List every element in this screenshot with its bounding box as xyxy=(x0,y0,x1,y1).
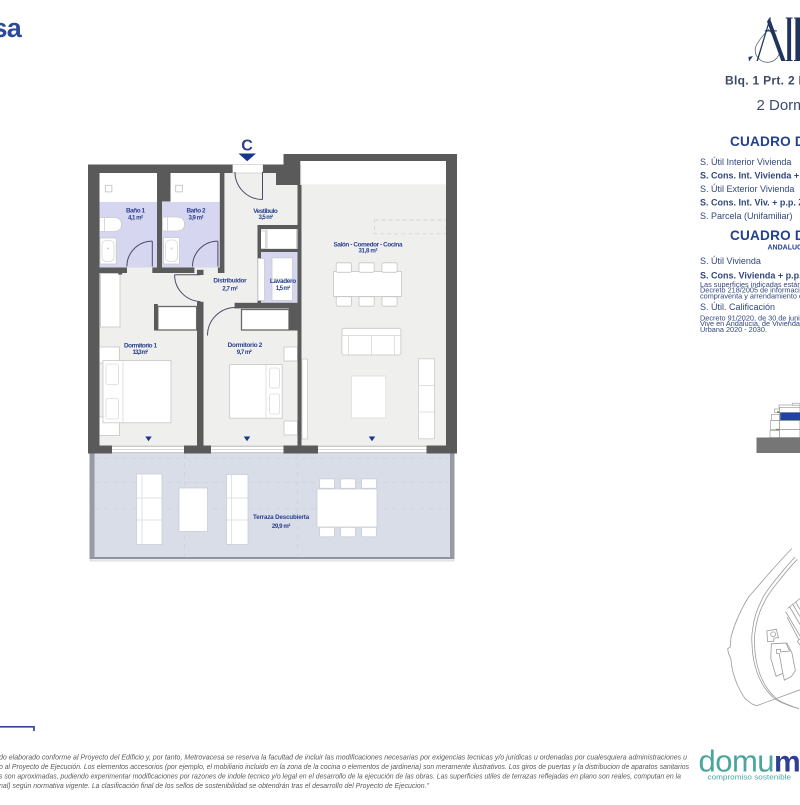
svg-text:Blq. 1 Prt. 2 Planta 1: Blq. 1 Prt. 2 Planta 1 xyxy=(725,74,800,88)
svg-text:Urbana 2020 - 2030.: Urbana 2020 - 2030. xyxy=(700,325,767,334)
svg-text:3,9 m²: 3,9 m² xyxy=(189,215,204,222)
svg-text:9,7 m²: 9,7 m² xyxy=(237,349,252,356)
svg-text:S. Útil Vivienda: S. Útil Vivienda xyxy=(700,256,761,266)
svg-text:S. Útil Interior Vivienda: S. Útil Interior Vivienda xyxy=(700,157,791,167)
svg-text:2 Dormitorios: 2 Dormitorios xyxy=(757,97,800,114)
svg-text:compraventa y arrendamiento de: compraventa y arrendamiento de xyxy=(700,291,800,300)
svg-text:S. Útil Exterior Vivienda: S. Útil Exterior Vivienda xyxy=(700,184,794,194)
svg-text:CUADRO DE: CUADRO DE xyxy=(730,134,800,149)
svg-text:4,1 m²: 4,1 m² xyxy=(128,215,143,222)
svg-text:Baño 1: Baño 1 xyxy=(126,208,145,215)
svg-text:S. Cons. Int. Viv. + p.p. ZZCC: S. Cons. Int. Viv. + p.p. ZZCC xyxy=(700,197,800,207)
svg-text:nal) según normativa vigente.: nal) según normativa vigente. La clasifi… xyxy=(0,781,429,790)
svg-text:do elaborado conforme al Proye: do elaborado conforme al Proyecto del Ed… xyxy=(0,753,687,762)
svg-text:13,3 m²: 13,3 m² xyxy=(133,349,149,356)
svg-text:C: C xyxy=(241,137,253,154)
svg-text:S. Parcela (Unifamiliar): S. Parcela (Unifamiliar) xyxy=(700,211,793,221)
svg-text:2,7 m²: 2,7 m² xyxy=(222,286,238,293)
svg-text:o al Proyecto de Ejecución. Lo: o al Proyecto de Ejecución. Los elemento… xyxy=(0,762,689,771)
svg-text:Baño 2: Baño 2 xyxy=(187,208,206,215)
svg-text:ANDALUC: ANDALUC xyxy=(768,244,800,251)
svg-text:compromiso sostenible: compromiso sostenible xyxy=(708,772,792,781)
svg-text:31,8 m²: 31,8 m² xyxy=(359,248,378,255)
svg-text:Dormitorio 2: Dormitorio 2 xyxy=(228,342,263,349)
svg-text:Terraza Descubierta: Terraza Descubierta xyxy=(253,514,310,521)
svg-text:29,9 m²: 29,9 m² xyxy=(272,523,291,530)
svg-text:CUADRO DE: CUADRO DE xyxy=(730,228,800,243)
svg-text:S. Útil. Calificación: S. Útil. Calificación xyxy=(700,302,775,312)
svg-text:s son aproximadas, pudiendo ex: s son aproximadas, pudiendo experimentar… xyxy=(0,772,681,781)
svg-text:sa: sa xyxy=(0,13,23,43)
svg-text:Lavadero: Lavadero xyxy=(270,278,296,285)
svg-text:Distribuidor: Distribuidor xyxy=(213,277,247,284)
svg-text:3,5 m²: 3,5 m² xyxy=(259,214,274,221)
svg-text:1,5 m²: 1,5 m² xyxy=(276,285,291,292)
svg-text:S. Cons. Int. Vivienda + p.p.: S. Cons. Int. Vivienda + p.p. ZZ xyxy=(700,170,800,180)
